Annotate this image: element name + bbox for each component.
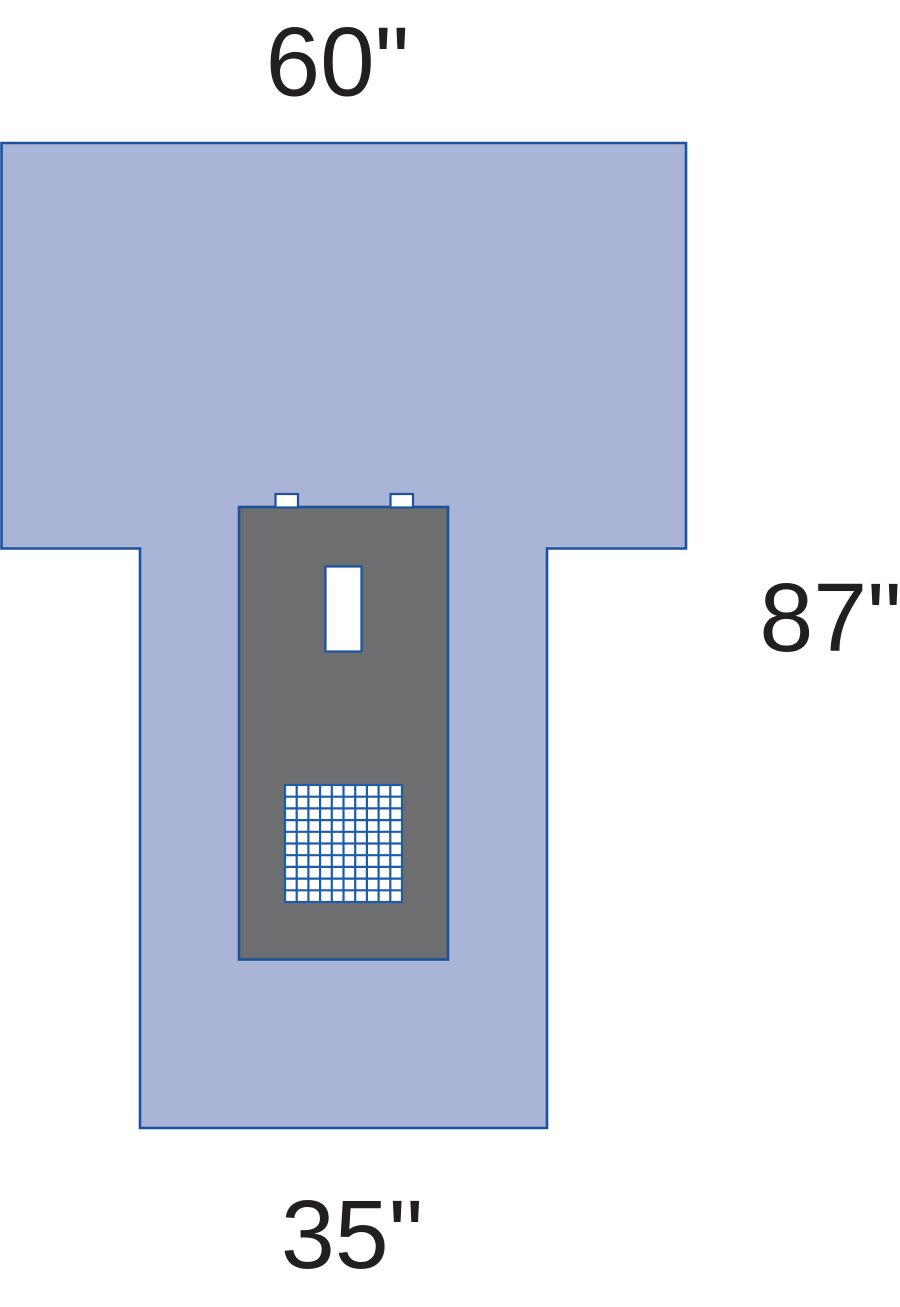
svg-text:35": 35" [281, 1180, 423, 1289]
svg-text:60": 60" [266, 7, 410, 117]
svg-text:87": 87" [759, 563, 900, 672]
